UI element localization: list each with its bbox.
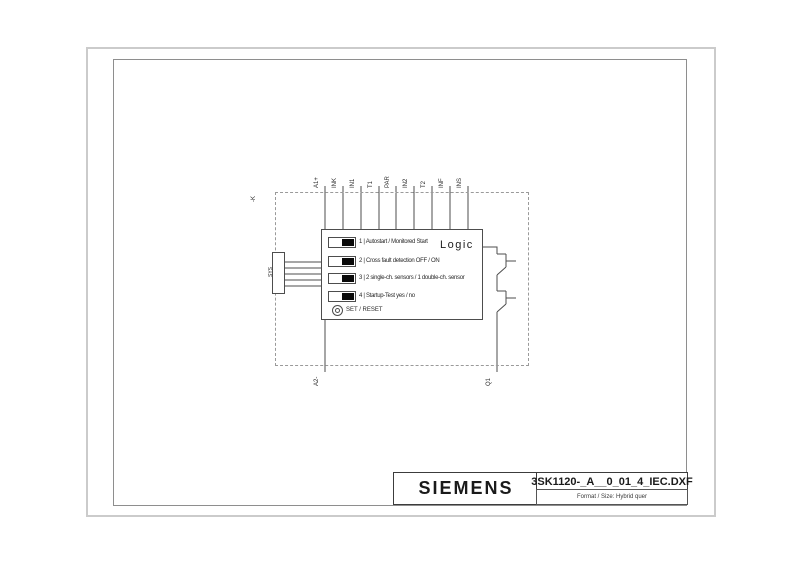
dip-switch-4-knob: [342, 293, 354, 300]
titleblock-format-size: Format / Size: Hybrid quer: [536, 489, 688, 505]
terminal-label-t2: T2: [420, 181, 428, 188]
dip-switch-4: [328, 291, 356, 302]
set-reset-button-dot: [335, 308, 340, 313]
terminal-label-ink: INK: [331, 178, 339, 188]
dip-switch-3-label: 3 | 2 single-ch. sensors / 1 double-ch. …: [359, 274, 465, 282]
terminal-label-q1: Q1: [485, 378, 493, 386]
dip-switch-1: [328, 237, 356, 248]
logic-box-label: Logic: [440, 239, 474, 251]
set-reset-label: SET / RESET: [346, 306, 383, 314]
dip-switch-3: [328, 273, 356, 284]
dip-switch-1-knob: [342, 239, 354, 246]
terminal-label-inf: INF: [438, 178, 446, 188]
terminal-label-t1: T1: [367, 181, 375, 188]
drawing-sheet: -K A1+ INK IN1 T1 PAR IN2 T2 INF INS A2-…: [0, 0, 800, 565]
dip-switch-2-label: 2 | Cross fault detection OFF / ON: [359, 257, 439, 265]
terminal-label-ins: INS: [456, 178, 464, 188]
terminal-label-par: PAR: [384, 176, 392, 188]
dip-switch-2: [328, 256, 356, 267]
device-tag-label: -K: [250, 196, 258, 202]
dip-switch-3-knob: [342, 275, 354, 282]
terminal-label-in2: IN2: [402, 179, 410, 188]
terminal-label-a1: A1+: [313, 177, 321, 188]
dip-switch-1-label: 1 | Autostart / Monitored Start: [359, 238, 428, 246]
terminal-label-in1: IN1: [349, 179, 357, 188]
titleblock-brand: SIEMENS: [393, 472, 539, 505]
dip-switch-2-knob: [342, 258, 354, 265]
terminal-label-a2: A2-: [313, 377, 321, 386]
set-reset-button-icon: [332, 305, 343, 316]
dip-switch-4-label: 4 | Startup-Test yes / no: [359, 292, 415, 300]
sys-connector-label: SYS: [268, 267, 274, 277]
